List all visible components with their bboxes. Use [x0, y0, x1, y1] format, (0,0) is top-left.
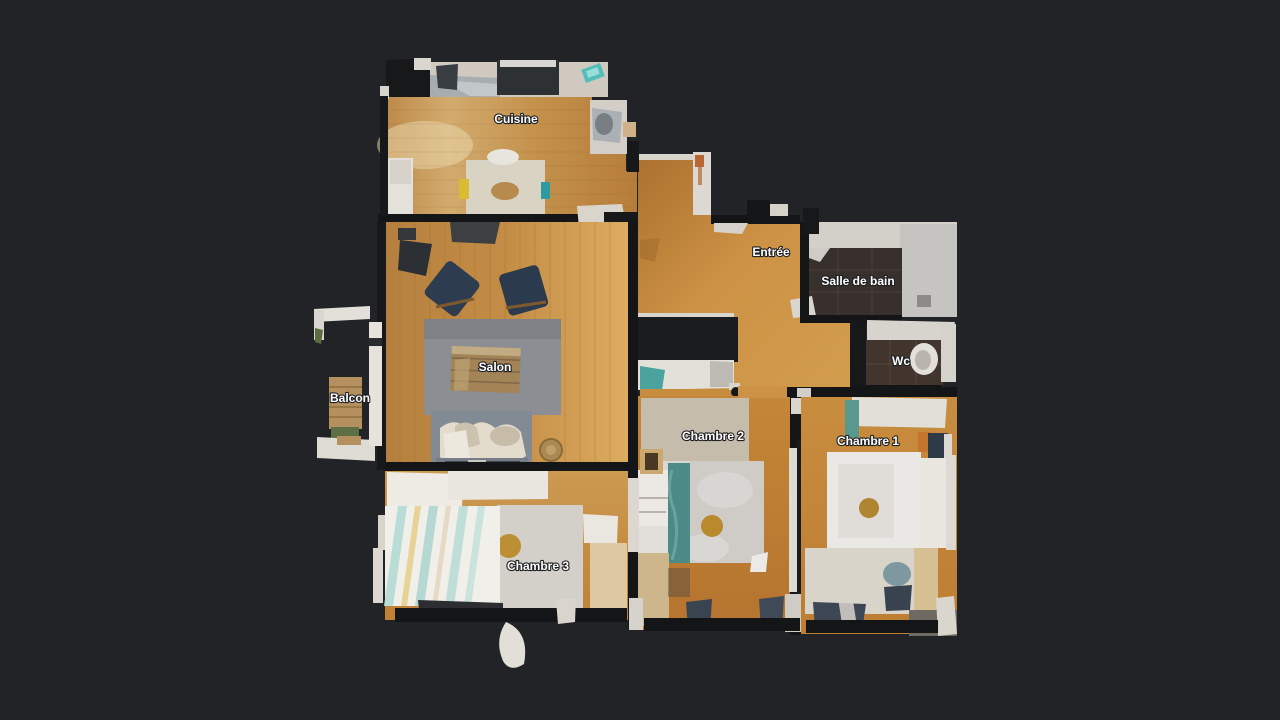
svg-text:Entrée: Entrée	[752, 245, 790, 259]
svg-text:Cuisine: Cuisine	[494, 112, 538, 126]
svg-text:Chambre 3: Chambre 3	[507, 559, 569, 573]
svg-text:Chambre 2: Chambre 2	[682, 429, 744, 443]
svg-text:Wc: Wc	[892, 354, 910, 368]
svg-text:Chambre 1: Chambre 1	[837, 434, 899, 448]
svg-text:Balcon: Balcon	[330, 391, 370, 405]
svg-text:Salon: Salon	[479, 360, 512, 374]
svg-text:Salle de bain: Salle de bain	[821, 274, 894, 288]
